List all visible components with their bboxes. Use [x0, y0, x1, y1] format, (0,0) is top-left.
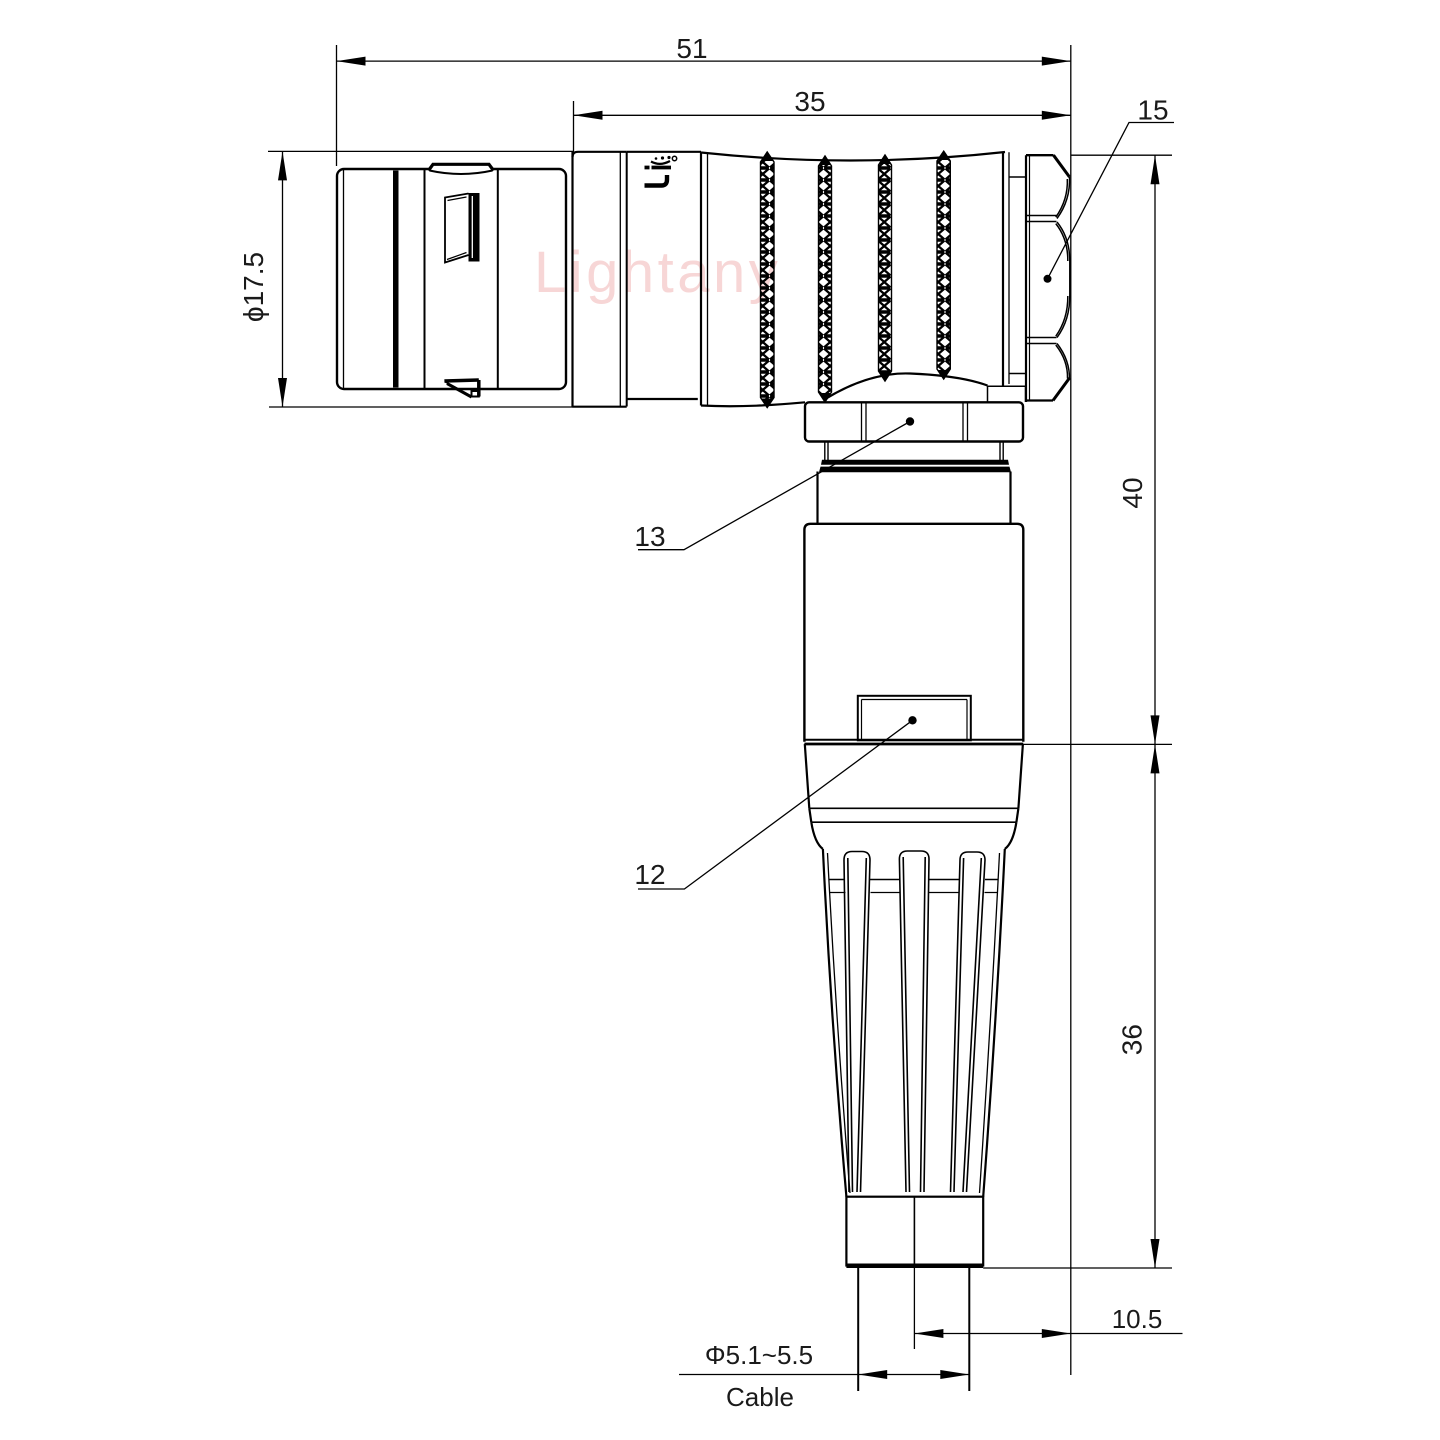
svg-text:35: 35 — [794, 86, 825, 117]
svg-text:10.5: 10.5 — [1112, 1304, 1163, 1334]
svg-text:12: 12 — [634, 859, 665, 890]
svg-text:15: 15 — [1137, 95, 1168, 126]
svg-text:36: 36 — [1117, 1024, 1148, 1055]
svg-text:51: 51 — [676, 33, 707, 64]
svg-text:13: 13 — [634, 521, 665, 552]
svg-text:Φ5.1~5.5: Φ5.1~5.5 — [705, 1340, 813, 1370]
svg-text:ϕ17.5: ϕ17.5 — [238, 252, 269, 322]
svg-text:Lightany: Lightany — [534, 240, 781, 305]
svg-text:Cable: Cable — [726, 1382, 794, 1412]
svg-text:40: 40 — [1117, 477, 1148, 508]
